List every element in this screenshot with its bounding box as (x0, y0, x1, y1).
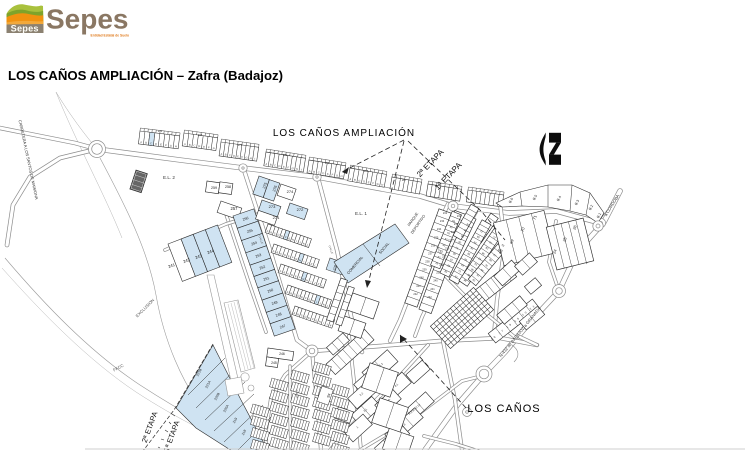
svg-text:258: 258 (225, 185, 231, 189)
svg-text:283: 283 (325, 161, 330, 165)
svg-text:274: 274 (287, 189, 294, 194)
svg-text:241: 241 (416, 284, 421, 288)
svg-text:233: 233 (454, 222, 459, 226)
svg-text:240: 240 (419, 276, 424, 280)
svg-text:242: 242 (413, 292, 418, 296)
svg-text:2ª ETAPA: 2ª ETAPA (140, 410, 160, 444)
svg-text:2ª ETAPA: 2ª ETAPA (415, 147, 446, 179)
svg-text:285: 285 (364, 169, 369, 173)
svg-text:236: 236 (445, 246, 450, 250)
svg-text:273: 273 (269, 204, 276, 209)
svg-text:237: 237 (442, 254, 447, 258)
svg-text:280: 280 (283, 153, 288, 157)
svg-text:242: 242 (427, 295, 432, 299)
svg-text:1ª ETAPA: 1ª ETAPA (162, 419, 182, 450)
svg-text:LOS CAÑOS: LOS CAÑOS (467, 402, 540, 415)
svg-text:238: 238 (425, 260, 430, 264)
svg-text:E.L. 1: E.L. 1 (355, 211, 367, 216)
svg-text:259: 259 (211, 186, 217, 190)
svg-text:235: 235 (448, 238, 453, 242)
svg-text:LOS CAÑOS AMPLIACIÓN: LOS CAÑOS AMPLIACIÓN (273, 126, 415, 139)
svg-text:232: 232 (443, 211, 448, 215)
svg-text:239: 239 (422, 268, 427, 272)
svg-text:235: 235 (434, 235, 439, 239)
svg-text:Sepes: Sepes (46, 4, 129, 35)
svg-text:CALLE: CALLE (295, 389, 299, 398)
svg-text:246: 246 (279, 352, 285, 356)
svg-text:271: 271 (273, 215, 280, 220)
svg-text:287: 287 (402, 178, 407, 182)
svg-text:218: 218 (198, 133, 203, 137)
svg-text:FFCC: FFCC (112, 363, 124, 373)
svg-text:236: 236 (431, 243, 436, 247)
svg-text:272: 272 (297, 207, 304, 212)
svg-text:E.L. 2: E.L. 2 (163, 175, 175, 180)
svg-text:279: 279 (238, 143, 243, 147)
svg-text:a CORDOBA: a CORDOBA (603, 193, 620, 217)
svg-text:233: 233 (440, 219, 445, 223)
svg-text:241: 241 (167, 262, 176, 269)
svg-text:Entidad Estatal de Suelo: Entidad Estatal de Suelo (91, 33, 129, 37)
svg-text:241: 241 (430, 287, 435, 291)
svg-text:238: 238 (439, 263, 444, 267)
svg-text:Sepes: Sepes (11, 24, 39, 34)
svg-text:LOS CAÑOS AMPLIACIÓN – Zafra (: LOS CAÑOS AMPLIACIÓN – Zafra (Badajoz) (8, 68, 283, 83)
svg-text:240: 240 (433, 279, 438, 283)
svg-text:232: 232 (457, 214, 462, 218)
svg-text:237: 237 (428, 251, 433, 255)
svg-text:257: 257 (231, 206, 239, 211)
svg-text:271: 271 (158, 129, 163, 133)
svg-text:234: 234 (451, 230, 456, 234)
svg-text:EXCLUSION: EXCLUSION (135, 298, 156, 319)
svg-text:239: 239 (436, 271, 441, 275)
svg-text:245: 245 (271, 361, 277, 365)
svg-text:234: 234 (437, 227, 442, 231)
svg-text:CALLE: CALLE (328, 245, 335, 255)
